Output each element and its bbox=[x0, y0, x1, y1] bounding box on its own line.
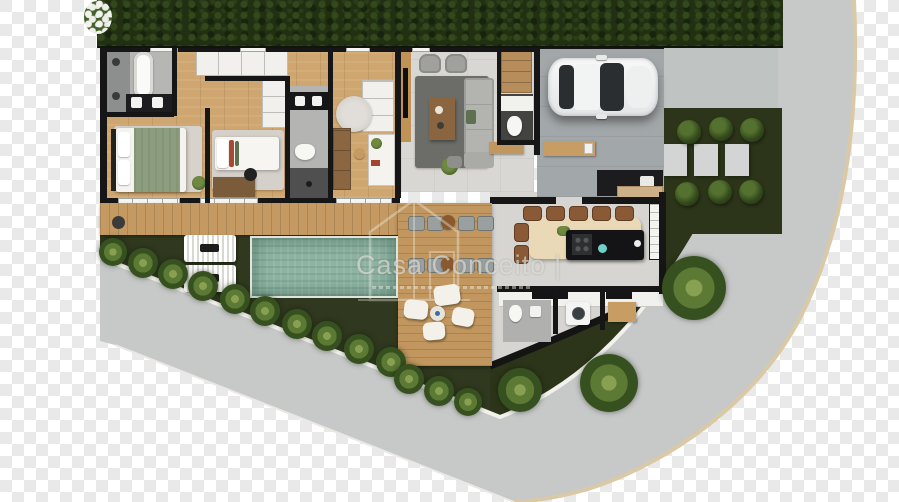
toilet bbox=[295, 144, 315, 160]
car-windshield bbox=[600, 63, 624, 111]
bedroom2-closet bbox=[262, 78, 286, 128]
palm-plant bbox=[250, 296, 280, 326]
palm-plant bbox=[99, 238, 127, 266]
round-bush bbox=[708, 180, 732, 204]
shower-drain bbox=[112, 58, 120, 66]
round-bush bbox=[739, 180, 763, 204]
bedroom3-round-rug bbox=[336, 96, 372, 132]
service-divider bbox=[600, 292, 605, 330]
shower-drain bbox=[306, 181, 312, 187]
interior-wall bbox=[172, 48, 177, 116]
dining-chair bbox=[569, 206, 588, 221]
sun-lounger bbox=[184, 235, 236, 262]
stepping-paver bbox=[694, 144, 718, 176]
large-palm bbox=[498, 368, 542, 412]
palm-plant bbox=[282, 309, 312, 339]
bedroom2-cushion-green bbox=[235, 141, 239, 166]
washer-door bbox=[572, 307, 585, 320]
car-roof bbox=[574, 64, 600, 110]
palm-plant bbox=[454, 388, 482, 416]
stepping-paver bbox=[663, 144, 687, 176]
white-flower-bush bbox=[84, 0, 112, 34]
bedroom-plant bbox=[192, 176, 206, 190]
bedroom3-stool bbox=[354, 148, 365, 159]
round-bush bbox=[709, 117, 733, 141]
island-faucet bbox=[634, 240, 641, 247]
coffee-table bbox=[429, 98, 455, 140]
suite-sink bbox=[152, 97, 163, 108]
kitchen-door-gap bbox=[556, 197, 582, 204]
coffee-table-decor bbox=[435, 106, 443, 114]
round-bush bbox=[675, 182, 699, 206]
coffee-table-decor bbox=[437, 122, 444, 129]
dining-chair bbox=[523, 206, 542, 221]
powder-wall bbox=[497, 140, 537, 145]
palm-plant bbox=[220, 284, 250, 314]
bedroom2-chair bbox=[244, 168, 257, 181]
service-sink bbox=[530, 306, 541, 317]
desk-books bbox=[371, 160, 380, 166]
watermark-separator: | bbox=[554, 250, 562, 280]
service-toilet bbox=[509, 305, 522, 322]
car-hood bbox=[626, 66, 652, 108]
hedge bbox=[97, 0, 783, 48]
powder-toilet bbox=[507, 116, 522, 136]
palm-plant bbox=[394, 364, 424, 394]
car-mirror bbox=[596, 114, 607, 119]
wardrobe-closet bbox=[196, 50, 288, 76]
island-cooktop bbox=[572, 234, 592, 255]
interior-wall bbox=[205, 76, 290, 81]
tv bbox=[403, 68, 408, 118]
bathroom2-sink bbox=[295, 96, 305, 106]
dining-chair bbox=[514, 223, 529, 242]
espresso-machine bbox=[584, 143, 593, 154]
island-teal-bowl bbox=[598, 244, 607, 253]
large-palm bbox=[580, 354, 638, 412]
palm-plant bbox=[424, 376, 454, 406]
floorplan-canvas: Casa Conceito| bbox=[0, 0, 899, 502]
palm-plant bbox=[128, 248, 158, 278]
bathtub bbox=[134, 52, 153, 98]
outdoor-shower-base bbox=[112, 216, 125, 229]
watermark-tagline bbox=[372, 286, 530, 289]
round-bush bbox=[677, 120, 701, 144]
interior-wall bbox=[205, 108, 210, 205]
powder-counter bbox=[501, 96, 533, 111]
watermark-logo bbox=[352, 188, 482, 308]
bathroom2-sink bbox=[312, 96, 322, 106]
counter-black-section bbox=[532, 292, 568, 299]
interior-wall bbox=[104, 112, 174, 117]
large-palm bbox=[662, 256, 726, 320]
palm-plant bbox=[344, 334, 374, 364]
interior-wall bbox=[395, 48, 401, 198]
foyer-wall bbox=[497, 48, 501, 144]
interior-wall bbox=[328, 48, 333, 205]
watermark-brand: Casa Conceito bbox=[356, 250, 546, 280]
laundry-bench bbox=[608, 302, 636, 322]
round-bush bbox=[740, 118, 764, 142]
sofa-chaise bbox=[464, 152, 494, 168]
car-mirror bbox=[596, 55, 607, 60]
bedroom2-pillow bbox=[217, 139, 228, 168]
floor-cushion bbox=[451, 306, 476, 328]
palm-plant bbox=[188, 271, 218, 301]
pouf bbox=[447, 156, 462, 168]
master-pillow bbox=[118, 132, 130, 157]
palm-plant bbox=[312, 321, 342, 351]
lounge-table-dish bbox=[435, 311, 440, 316]
left-exterior-wall bbox=[100, 45, 107, 205]
master-bed-throw bbox=[134, 128, 180, 192]
lounger-towel bbox=[200, 244, 219, 252]
armchair bbox=[445, 54, 467, 73]
bedroom3-wardrobe bbox=[333, 128, 351, 190]
desk-plant bbox=[371, 138, 382, 149]
garage-living-wall bbox=[534, 45, 540, 155]
car-rear-window bbox=[559, 65, 574, 109]
suite-sink bbox=[131, 97, 142, 108]
watermark-text: Casa Conceito| bbox=[356, 250, 556, 281]
foyer-closet bbox=[501, 50, 532, 93]
sofa-plant-cushion bbox=[466, 110, 476, 124]
master-pillow bbox=[118, 160, 130, 185]
dining-chair bbox=[592, 206, 611, 221]
shower-drain bbox=[112, 92, 120, 100]
service-divider bbox=[553, 292, 558, 334]
stepping-paver bbox=[725, 144, 749, 176]
car bbox=[548, 56, 658, 118]
dining-chair bbox=[546, 206, 565, 221]
interior-wall bbox=[285, 78, 290, 205]
bedroom2-cushion-red bbox=[229, 140, 234, 167]
dining-chair bbox=[615, 206, 634, 221]
armchair bbox=[419, 54, 441, 73]
counter-black-section bbox=[606, 292, 632, 299]
palm-plant bbox=[158, 259, 188, 289]
floor-cushion bbox=[422, 321, 445, 341]
